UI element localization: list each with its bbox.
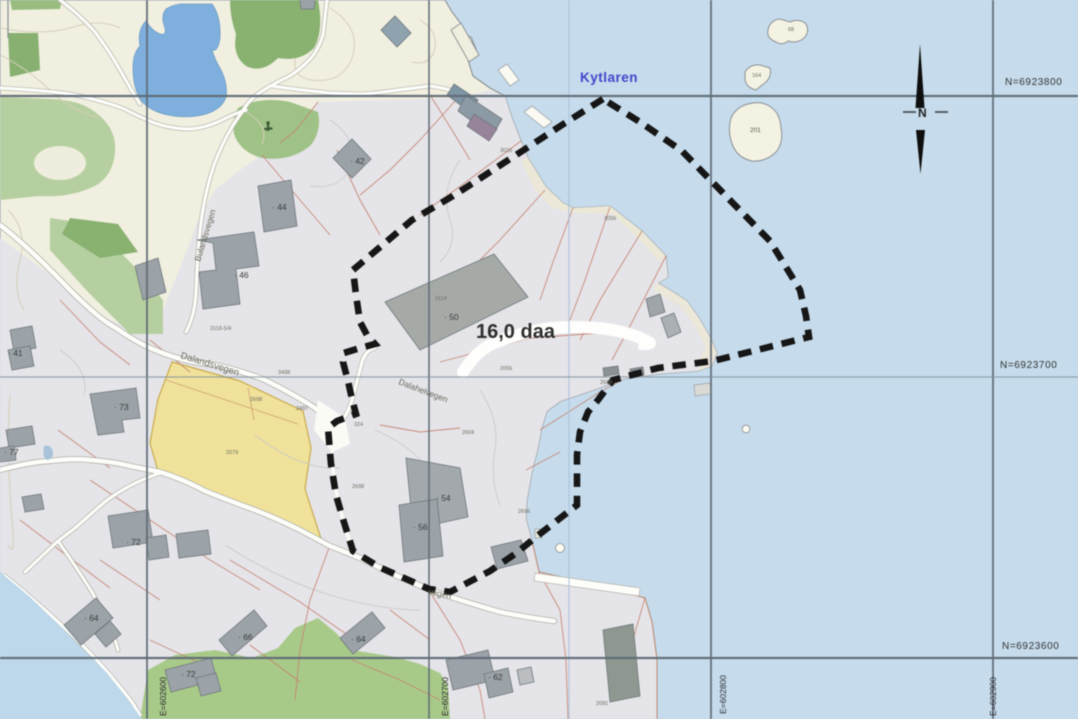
svg-text:· 72: · 72 [126,537,141,547]
svg-text:· 62: · 62 [488,672,503,682]
svg-text:2696: 2696 [518,509,530,515]
svg-text:· 41: · 41 [8,348,23,358]
svg-text:3114: 3114 [435,296,447,302]
svg-text:· 64: · 64 [84,613,99,623]
svg-text:· 44: · 44 [272,202,287,212]
svg-text:E=602900: E=602900 [988,677,998,716]
svg-text:164: 164 [752,73,761,79]
svg-text:E=602700: E=602700 [440,677,450,716]
svg-text:· 56: · 56 [413,522,428,532]
svg-text:· 66: · 66 [238,632,253,642]
svg-text:3497: 3497 [296,406,308,412]
svg-text:16,0 daa: 16,0 daa [476,321,556,343]
svg-text:· 50: · 50 [444,312,459,322]
svg-text:Kytlaren: Kytlaren [580,70,638,85]
svg-text:2079: 2079 [226,450,238,456]
svg-text:3498: 3498 [278,370,290,376]
svg-text:E=602600: E=602600 [158,677,168,716]
svg-text:N=6923800: N=6923800 [1005,77,1062,88]
svg-text:· 72: · 72 [181,669,196,679]
svg-text:2698: 2698 [250,397,262,403]
svg-text:· 46: · 46 [234,270,249,280]
svg-text:2604: 2604 [462,430,474,436]
svg-text:· 54: · 54 [436,493,451,503]
svg-text:3056: 3056 [604,216,616,222]
svg-text:N=6923700: N=6923700 [1000,360,1057,371]
svg-text:2698: 2698 [600,380,612,386]
svg-text:3016: 3016 [500,148,512,154]
svg-text:68: 68 [788,27,794,33]
svg-text:· 42: · 42 [350,156,365,166]
svg-text:2091: 2091 [596,701,608,707]
svg-text:2698: 2698 [352,484,364,490]
svg-text:E=602800: E=602800 [718,675,728,714]
svg-text:N=6923600: N=6923600 [1002,641,1059,652]
svg-text:324: 324 [354,422,363,428]
svg-text:N: N [918,106,927,120]
svg-text:· 73: · 73 [114,402,129,412]
svg-text:3118-5/4: 3118-5/4 [210,326,231,332]
svg-text:2056: 2056 [500,366,512,372]
svg-text:· 64: · 64 [351,634,366,644]
svg-text:· 77: · 77 [4,447,19,457]
svg-text:201: 201 [750,127,761,134]
